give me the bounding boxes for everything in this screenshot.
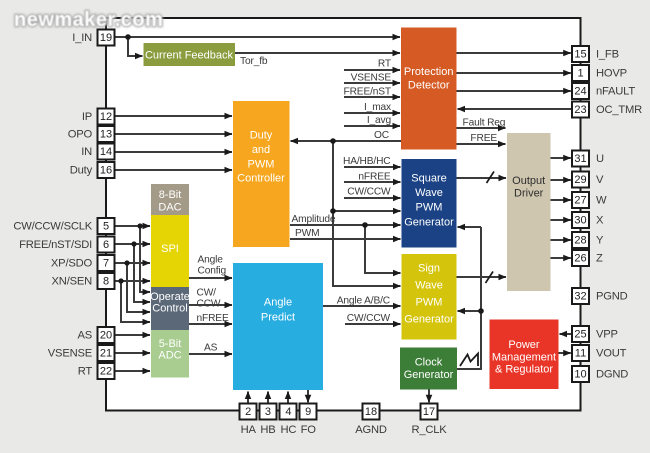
svg-text:13: 13 — [100, 129, 112, 141]
svg-text:Detector: Detector — [408, 80, 450, 92]
svg-text:Control: Control — [152, 303, 187, 315]
svg-text:1: 1 — [577, 68, 583, 80]
svg-text:26: 26 — [574, 253, 586, 265]
svg-text:nFREE: nFREE — [197, 313, 229, 324]
svg-text:5-Bit: 5-Bit — [159, 338, 182, 350]
svg-text:Angle A/B/C: Angle A/B/C — [337, 295, 390, 306]
svg-text:Controller: Controller — [237, 173, 285, 185]
svg-text:3: 3 — [265, 406, 271, 418]
svg-text:30: 30 — [574, 215, 586, 227]
svg-text:X: X — [596, 215, 604, 227]
svg-text:15: 15 — [574, 49, 586, 61]
svg-text:HOVP: HOVP — [596, 68, 627, 80]
svg-text:11: 11 — [575, 348, 586, 360]
svg-text:OC_TMR: OC_TMR — [596, 104, 642, 116]
svg-text:OPO: OPO — [68, 129, 93, 141]
svg-text:Sign: Sign — [418, 263, 440, 275]
svg-text:HA/HB/HC: HA/HB/HC — [343, 156, 390, 167]
svg-text:XP/SDO: XP/SDO — [51, 258, 93, 270]
svg-text:32: 32 — [574, 291, 586, 303]
svg-text:AGND: AGND — [355, 424, 387, 436]
svg-text:17: 17 — [423, 406, 435, 418]
svg-text:FREE/nST: FREE/nST — [344, 86, 391, 97]
svg-text:Clock: Clock — [415, 357, 443, 369]
svg-text:5: 5 — [103, 221, 109, 233]
svg-text:R_CLK: R_CLK — [411, 424, 447, 436]
svg-text:SPI: SPI — [161, 243, 179, 255]
svg-text:14: 14 — [100, 146, 112, 158]
svg-text:I_avg: I_avg — [367, 115, 392, 126]
svg-text:OC: OC — [374, 130, 389, 141]
svg-text:nFREE: nFREE — [358, 171, 390, 182]
svg-text:18: 18 — [365, 406, 377, 418]
svg-text:RT: RT — [378, 59, 391, 70]
svg-text:Driver: Driver — [514, 188, 544, 200]
svg-text:HC: HC — [281, 424, 297, 436]
svg-text:V: V — [596, 174, 604, 186]
svg-text:25: 25 — [574, 329, 586, 341]
svg-text:newmaker.com: newmaker.com — [14, 9, 163, 31]
svg-text:CCW: CCW — [197, 299, 221, 310]
svg-text:Generator: Generator — [404, 369, 454, 381]
svg-text:10: 10 — [574, 369, 586, 381]
svg-text:VSENSE: VSENSE — [351, 72, 392, 83]
svg-text:PWM: PWM — [295, 228, 319, 239]
svg-text:24: 24 — [574, 86, 586, 98]
svg-text:Square: Square — [411, 173, 446, 185]
svg-text:PWM: PWM — [416, 297, 443, 309]
svg-text:Power: Power — [508, 339, 540, 351]
svg-text:Predict: Predict — [261, 312, 295, 324]
svg-text:Y: Y — [596, 235, 604, 247]
svg-text:and: and — [252, 144, 270, 156]
svg-text:& Regulator: & Regulator — [495, 364, 553, 376]
svg-text:Angle: Angle — [198, 255, 224, 266]
svg-text:29: 29 — [574, 174, 586, 186]
svg-text:Generator: Generator — [404, 314, 454, 326]
svg-text:8: 8 — [103, 276, 109, 288]
svg-text:Config: Config — [198, 266, 227, 277]
svg-text:27: 27 — [574, 195, 586, 207]
svg-text:6: 6 — [103, 239, 109, 251]
svg-text:Tor_fb: Tor_fb — [240, 56, 268, 67]
svg-text:Management: Management — [492, 351, 556, 363]
svg-text:I_FB: I_FB — [596, 49, 619, 61]
svg-text:Z: Z — [596, 253, 603, 265]
svg-text:Duty: Duty — [70, 165, 93, 177]
svg-text:nFAULT: nFAULT — [596, 86, 635, 98]
svg-text:Wave: Wave — [415, 187, 443, 199]
svg-text:Fault Reg: Fault Reg — [463, 118, 506, 129]
svg-text:19: 19 — [100, 32, 112, 44]
svg-text:AS: AS — [204, 342, 218, 353]
svg-text:31: 31 — [574, 153, 586, 165]
svg-text:I_max: I_max — [364, 102, 391, 113]
svg-text:CW/CCW: CW/CCW — [347, 187, 391, 198]
svg-text:PGND: PGND — [596, 291, 628, 303]
svg-text:VSENSE: VSENSE — [48, 348, 92, 360]
svg-text:Generator: Generator — [404, 217, 454, 229]
svg-text:Wave: Wave — [415, 280, 443, 292]
svg-text:Protection: Protection — [404, 66, 454, 78]
svg-text:DAC: DAC — [158, 202, 181, 214]
svg-text:20: 20 — [100, 330, 112, 342]
svg-text:Current Feedback: Current Feedback — [145, 50, 234, 62]
svg-text:PWM: PWM — [416, 202, 443, 214]
svg-text:RT: RT — [78, 366, 93, 378]
svg-text:CW/CCW/SCLK: CW/CCW/SCLK — [13, 221, 92, 233]
svg-text:I_IN: I_IN — [72, 32, 92, 44]
svg-text:16: 16 — [100, 165, 112, 177]
svg-text:22: 22 — [100, 366, 112, 378]
svg-text:Amplitude: Amplitude — [292, 214, 336, 225]
svg-text:IN: IN — [81, 146, 92, 158]
svg-text:21: 21 — [100, 348, 112, 360]
svg-text:AS: AS — [77, 330, 92, 342]
svg-text:VPP: VPP — [596, 329, 618, 341]
svg-text:HA: HA — [241, 424, 257, 436]
svg-text:Duty: Duty — [250, 130, 273, 142]
svg-text:FREE/nST/SDI: FREE/nST/SDI — [19, 239, 92, 251]
svg-text:23: 23 — [574, 104, 586, 116]
svg-text:PWM: PWM — [248, 159, 275, 171]
svg-text:CW/: CW/ — [197, 288, 217, 299]
svg-text:2: 2 — [245, 406, 251, 418]
svg-text:HB: HB — [260, 424, 275, 436]
svg-text:28: 28 — [574, 235, 586, 247]
svg-text:7: 7 — [103, 258, 109, 270]
svg-text:IP: IP — [82, 111, 92, 123]
svg-text:8-Bit: 8-Bit — [159, 189, 182, 201]
svg-text:VOUT: VOUT — [596, 348, 627, 360]
svg-text:U: U — [596, 153, 604, 165]
svg-text:FREE: FREE — [470, 133, 497, 144]
svg-text:W: W — [596, 195, 607, 207]
svg-text:FO: FO — [301, 424, 317, 436]
svg-text:ADC: ADC — [158, 350, 181, 362]
svg-text:9: 9 — [305, 406, 311, 418]
svg-text:Angle: Angle — [264, 297, 292, 309]
svg-text:DGND: DGND — [596, 369, 628, 381]
svg-text:12: 12 — [100, 111, 112, 123]
svg-text:Operate: Operate — [150, 291, 190, 303]
svg-text:Output: Output — [512, 175, 545, 187]
svg-text:XN/SEN: XN/SEN — [52, 276, 93, 288]
svg-text:CW/CCW: CW/CCW — [347, 313, 391, 324]
svg-text:4: 4 — [285, 406, 291, 418]
